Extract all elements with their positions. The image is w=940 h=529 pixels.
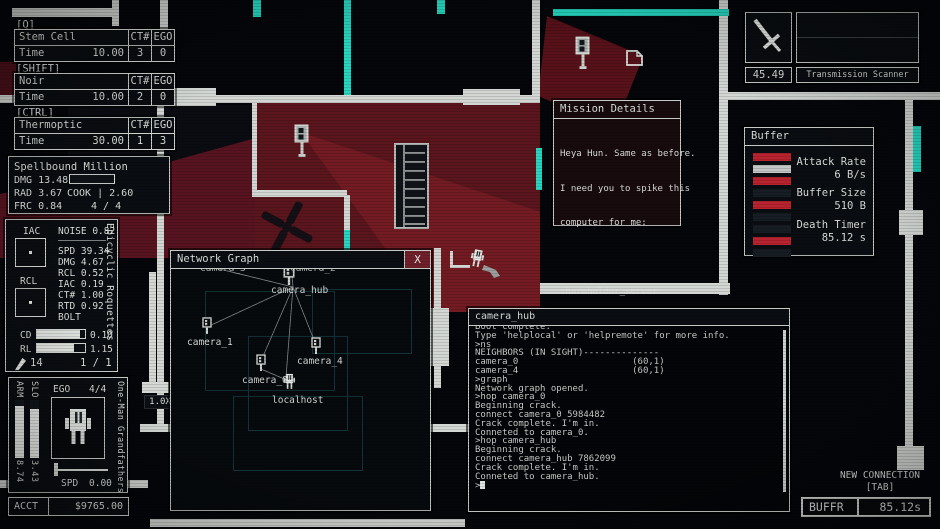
wall (719, 0, 728, 295)
iac-slot[interactable] (15, 238, 46, 267)
ammo-count: 14 (30, 357, 43, 369)
node-label-camera-1[interactable]: camera_1 (187, 337, 233, 348)
player-sprite (58, 405, 98, 451)
mission-details-window[interactable]: Mission Details Heya Hun. Same as before… (553, 100, 681, 226)
player-portrait (51, 397, 105, 459)
scanner-label: Transmission Scanner (796, 67, 919, 83)
ability-shift[interactable]: Noir CT# EGO Time10.00 2 0 (14, 73, 175, 106)
door-block (897, 446, 924, 470)
buffer-slot (753, 189, 791, 197)
ability-name: Thermoptic Camouflage (15, 118, 128, 133)
node-label-camera-2[interactable]: camera_2 (290, 269, 336, 274)
stat-bolt: BOLT (58, 312, 81, 323)
stat-rcl: RCL 0.52 (58, 268, 104, 279)
mission-line: I need you to spike this (560, 184, 674, 196)
close-button[interactable]: X (404, 251, 430, 268)
terminal-titlebar[interactable]: camera_hub (469, 309, 789, 326)
terminal-line: Conneted to camera_hub. (475, 473, 783, 482)
node-camera-4-icon[interactable] (311, 337, 321, 358)
ability-name: Stem Cell Injection (15, 30, 128, 45)
new-connection-label: NEW CONNECTION (820, 470, 940, 482)
wall (112, 0, 119, 26)
account-label: ACCT (9, 498, 49, 515)
buffer-timer-value: 85.12s (859, 499, 929, 515)
network-graph-window[interactable]: Network Graph X (170, 250, 431, 511)
buffer-slot (753, 213, 791, 221)
terminal-line: Type 'helplocal' or 'helpremote' for mor… (475, 332, 783, 341)
ability-q[interactable]: Stem Cell Injection CT# EGO Time10.00 3 … (14, 29, 175, 62)
pencil-icon (14, 356, 27, 375)
terminal-prompt-line[interactable]: > (475, 481, 783, 491)
network-graph-title: Network Graph (177, 253, 259, 265)
player-panel: ARM SLO 8.74 3.43 EGO 4/4 SPD 0.00 One-M… (8, 377, 128, 493)
buffer-slot (753, 177, 791, 185)
wall (252, 103, 257, 195)
buffer-slot (753, 249, 791, 257)
ability-time: Time10.00 (15, 90, 128, 105)
network-graph-titlebar[interactable]: Network Graph X (171, 251, 430, 269)
terminal-line: camera_4 (60,1) (475, 367, 783, 376)
node-camera-1-icon[interactable] (202, 317, 212, 338)
network-graph-canvas[interactable]: camera_3 camera_2 camera_hub camera_1 ca… (171, 269, 430, 510)
stat-spd: SPD 39.34 (58, 246, 109, 257)
weapon-frc: FRC 0.84 (14, 201, 62, 212)
weapon-mag: 4 / 4 (91, 201, 121, 212)
cd-label: CD (20, 330, 31, 341)
sword-icon (749, 16, 789, 60)
stat-iac: IAC 0.19 (58, 279, 104, 290)
spd-slider-track[interactable] (54, 469, 108, 471)
wall (905, 92, 913, 460)
weapon-dmg: DMG 13.48 (14, 175, 68, 186)
ability-ct: 2 (128, 90, 151, 105)
arm-label: ARM (14, 381, 24, 398)
cd-value: 0.10 (90, 330, 113, 341)
ability-ego: 0 (151, 46, 174, 61)
weapon-panel: Spellbound Million DMG 13.48 RAD 3.67 CO… (8, 156, 170, 214)
new-connection-hint: NEW CONNECTION [TAB] (820, 470, 940, 494)
terminal-output[interactable]: Boot complete. Type 'helplocal' or 'help… (469, 326, 789, 510)
attack-rate-label: Attack Rate (796, 156, 866, 168)
ladder-icon (394, 143, 429, 229)
buffer-slot (753, 225, 791, 233)
buffer-slot (753, 201, 791, 209)
buffer-slot (753, 153, 791, 161)
secondary-weapon-panel: IAC NOISE 0.82 SPD 39.34 DMG 4.67 RCL 0.… (5, 219, 118, 372)
ability-ego: 0 (151, 90, 174, 105)
rl-label: RL (20, 344, 31, 355)
buffer-slot (753, 237, 791, 245)
terminal-window[interactable]: camera_hub Boot complete. Type 'helploca… (468, 308, 790, 512)
node-label-camera-4[interactable]: camera_4 (297, 356, 343, 367)
security-camera-icon (294, 123, 310, 159)
ability-time: Time30.00 (15, 134, 128, 149)
rcl-slot[interactable] (15, 288, 46, 317)
ability-ct: 3 (128, 46, 151, 61)
weapon-rad: RAD 3.67 (14, 188, 62, 199)
door-block (463, 89, 520, 105)
secondary-weapon-name: Epicyclic Roquettes (104, 223, 115, 323)
door-teal (344, 0, 351, 95)
mission-target: shareholder_server (560, 287, 674, 299)
buffer-panel: Buffer Attack Rate 6 B/s Buffer Size 510… (744, 127, 874, 256)
death-timer-label: Death Timer (796, 219, 866, 231)
rcl-label: RCL (20, 276, 37, 287)
cd-meter (36, 329, 86, 339)
ct-header: CT# (128, 118, 151, 133)
attack-rate-value: 6 B/s (834, 169, 866, 181)
wall-corner (450, 251, 453, 268)
ego-label: EGO (53, 384, 70, 395)
stat-dmg: DMG 4.67 (58, 257, 104, 268)
weapon-dmg-bar (69, 174, 115, 184)
ability-ego: 3 (151, 134, 174, 149)
tab-key-hint: [TAB] (820, 482, 940, 494)
ego-header: EGO (151, 30, 174, 45)
slo-bar (30, 400, 39, 458)
noise-underline (58, 240, 106, 241)
mission-line: computer for me: (560, 218, 674, 230)
fan-icon (256, 201, 318, 253)
map-zoom-slider[interactable] (149, 272, 156, 384)
wall (12, 8, 112, 17)
door-teal (253, 0, 261, 17)
slo-label: SLO (29, 381, 39, 398)
secondary-mag: 1 / 1 (80, 357, 112, 369)
terminal-scrollbar[interactable] (783, 330, 786, 492)
rl-meter (36, 343, 86, 353)
stat-ct: CT# 1.00 (58, 290, 104, 301)
ego-value: 4/4 (89, 384, 106, 395)
spd-value: 0.00 (89, 478, 112, 489)
ct-header: CT# (128, 30, 151, 45)
buffer-timer-label: BUFFR (803, 499, 859, 515)
scanner-divider (797, 37, 918, 38)
door-teal (536, 148, 542, 190)
door-teal (437, 0, 445, 14)
door-teal (913, 126, 921, 172)
player-icon (464, 248, 504, 284)
wall (252, 190, 347, 197)
ego-header: EGO (151, 118, 174, 133)
buffer-title: Buffer (745, 128, 873, 146)
arm-bar (15, 400, 24, 458)
node-label-camera-0[interactable]: camera_0 (242, 375, 288, 386)
map-zoom-slider-handle[interactable] (142, 382, 169, 393)
mission-line: Heya Hun. Same as before. (560, 149, 674, 161)
buffer-slots (753, 153, 791, 261)
node-label-camera-hub[interactable]: camera_hub (271, 285, 328, 296)
buffer-size-value: 510 B (834, 200, 866, 212)
node-label-camera-3[interactable]: camera_3 (200, 269, 246, 274)
arm-value: 8.74 (14, 460, 24, 482)
iac-dot (29, 251, 32, 254)
ability-ct: 1 (128, 134, 151, 149)
mission-details-title[interactable]: Mission Details (554, 101, 680, 119)
rcl-dot (29, 301, 32, 304)
ego-header: EGO (151, 74, 174, 89)
wall (344, 195, 350, 232)
rl-value: 1.15 (90, 344, 113, 355)
door-block (899, 210, 923, 235)
stat-rtd: RTD 0.92 (58, 301, 104, 312)
scanner-value: 45.49 (745, 67, 792, 83)
buffer-timer-box: BUFFR 85.12s (801, 497, 931, 517)
ability-time: Time10.00 (15, 46, 128, 61)
document-icon (625, 49, 645, 71)
graph-edges (171, 269, 430, 510)
ct-header: CT# (128, 74, 151, 89)
door-teal (553, 9, 729, 16)
node-label-localhost[interactable]: localhost (272, 395, 323, 406)
wall (150, 519, 465, 527)
buffer-size-label: Buffer Size (796, 187, 866, 199)
door-block (168, 88, 216, 106)
scanner-display (796, 12, 919, 63)
ability-ctrl[interactable]: Thermoptic Camouflage CT# EGO Time30.00 … (14, 117, 175, 150)
security-camera-icon (575, 33, 591, 73)
buffer-slot (753, 165, 791, 173)
account-balance: $9765.00 (49, 498, 128, 515)
node-camera-0-icon[interactable] (256, 354, 266, 375)
wall (532, 0, 540, 95)
player-name: One-Man Grandfathers (115, 381, 125, 491)
death-timer-value: 85.12 s (822, 232, 866, 244)
iac-label: IAC (23, 226, 40, 237)
spd-label: SPD (61, 478, 78, 489)
account-panel: ACCT $9765.00 (8, 497, 129, 516)
weapon-cook: COOK | 2.60 (67, 188, 133, 199)
slo-value: 3.43 (29, 460, 39, 482)
scanner-item-slot[interactable] (745, 12, 792, 63)
game-screen: 1.0X [Q] Stem Cell Injection CT# EGO Tim… (0, 0, 940, 529)
ability-name: Noir (15, 74, 128, 89)
weapon-name: Spellbound Million (14, 161, 128, 173)
terminal-cursor (480, 481, 485, 489)
